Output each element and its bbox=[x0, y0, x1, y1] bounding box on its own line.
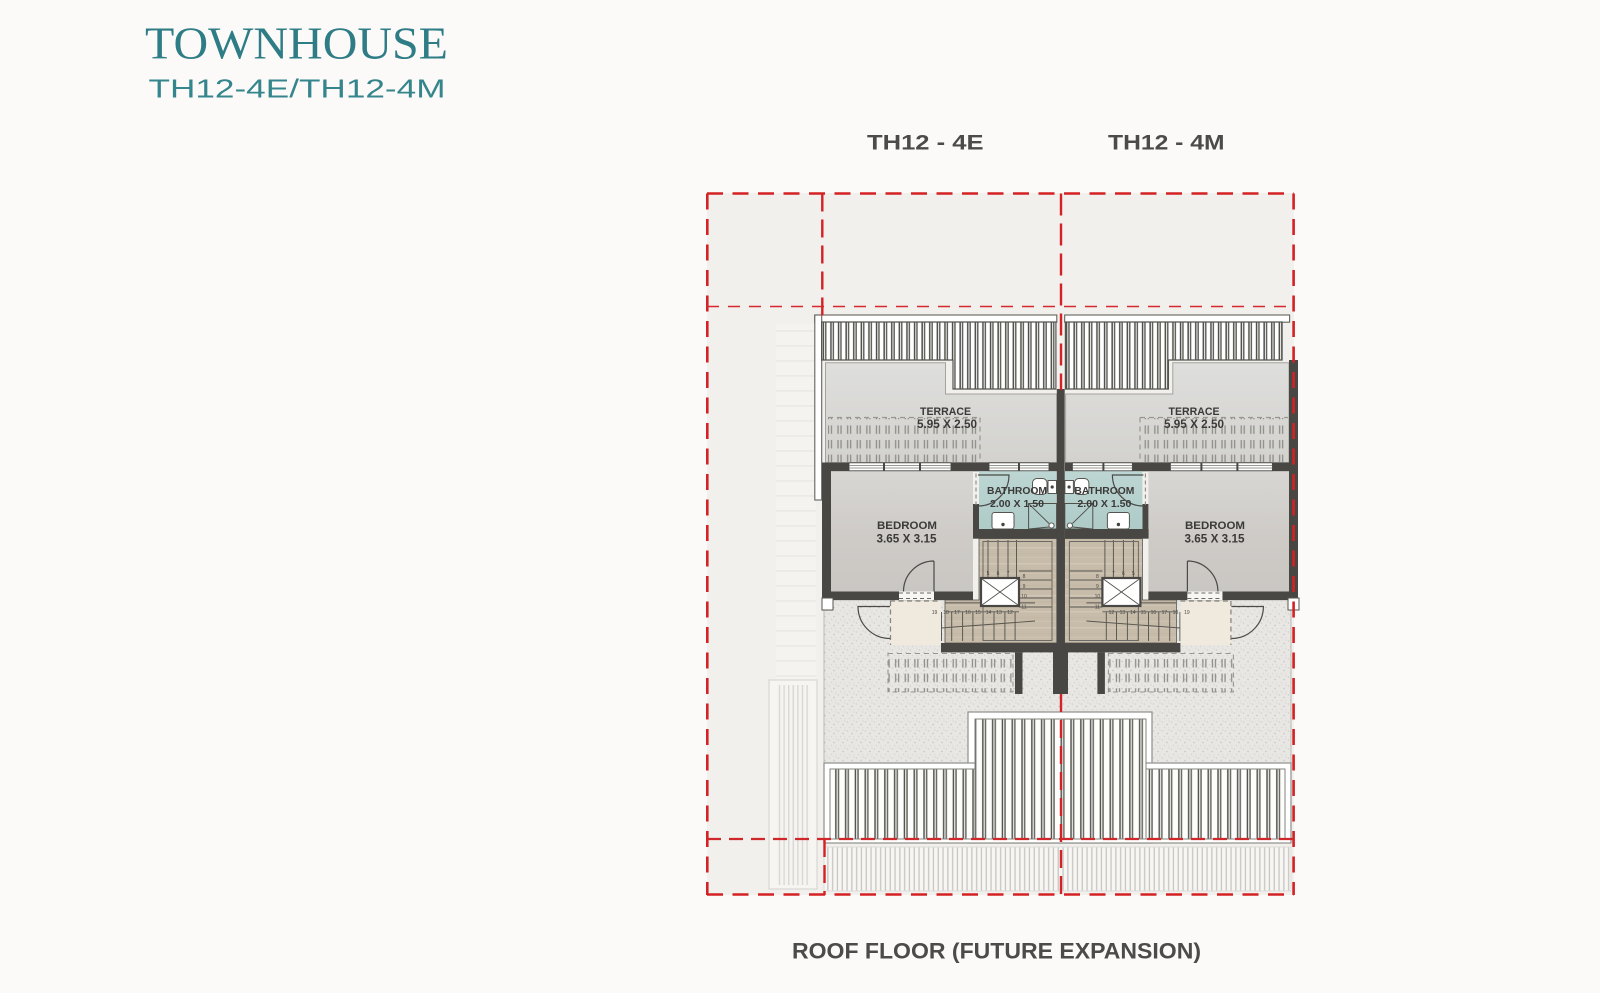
svg-text:5.95 X 2.50: 5.95 X 2.50 bbox=[1164, 419, 1224, 431]
svg-text:15: 15 bbox=[975, 610, 981, 616]
svg-text:17: 17 bbox=[954, 610, 960, 616]
svg-text:9: 9 bbox=[1096, 584, 1099, 590]
svg-text:6: 6 bbox=[1122, 571, 1125, 577]
svg-text:13: 13 bbox=[1120, 610, 1126, 616]
svg-text:5.95 X 2.50: 5.95 X 2.50 bbox=[917, 419, 977, 431]
svg-text:TERRACE: TERRACE bbox=[1169, 406, 1220, 418]
svg-text:TH12 - 4E: TH12 - 4E bbox=[867, 132, 984, 155]
svg-text:3.65 X 3.15: 3.65 X 3.15 bbox=[1185, 534, 1246, 546]
svg-text:6: 6 bbox=[997, 571, 1000, 577]
svg-text:19: 19 bbox=[1184, 610, 1190, 616]
svg-text:9: 9 bbox=[1023, 584, 1026, 590]
svg-text:BEDROOM: BEDROOM bbox=[1185, 520, 1245, 532]
svg-text:18: 18 bbox=[943, 610, 949, 616]
svg-text:11: 11 bbox=[1021, 605, 1026, 611]
svg-text:15: 15 bbox=[1141, 610, 1147, 616]
svg-text:BATHROOM: BATHROOM bbox=[987, 486, 1047, 497]
svg-text:5: 5 bbox=[987, 571, 990, 577]
svg-text:12: 12 bbox=[1007, 610, 1013, 616]
svg-text:16: 16 bbox=[1151, 610, 1157, 616]
svg-text:TERRACE: TERRACE bbox=[920, 406, 971, 418]
svg-text:13: 13 bbox=[996, 610, 1002, 616]
svg-text:TH12-4E/TH12-4M: TH12-4E/TH12-4M bbox=[149, 74, 446, 104]
svg-text:14: 14 bbox=[986, 610, 992, 616]
svg-text:16: 16 bbox=[965, 610, 971, 616]
svg-text:12: 12 bbox=[1109, 610, 1115, 616]
svg-text:BEDROOM: BEDROOM bbox=[877, 520, 937, 532]
svg-text:ROOF FLOOR (FUTURE EXPANSION): ROOF FLOOR (FUTURE EXPANSION) bbox=[792, 939, 1201, 964]
svg-text:2.00 X 1.50: 2.00 X 1.50 bbox=[990, 498, 1044, 510]
svg-text:14: 14 bbox=[1130, 610, 1136, 616]
svg-text:BATHROOM: BATHROOM bbox=[1074, 486, 1134, 497]
svg-text:7: 7 bbox=[1007, 571, 1010, 577]
svg-text:8: 8 bbox=[1096, 574, 1099, 580]
svg-text:7: 7 bbox=[1112, 571, 1115, 577]
svg-text:10: 10 bbox=[1095, 594, 1101, 600]
svg-text:18: 18 bbox=[1173, 610, 1179, 616]
svg-text:8: 8 bbox=[1023, 574, 1026, 580]
svg-text:19: 19 bbox=[932, 610, 938, 616]
svg-text:5: 5 bbox=[1132, 571, 1135, 577]
svg-text:TOWNHOUSE: TOWNHOUSE bbox=[145, 18, 448, 69]
svg-text:17: 17 bbox=[1162, 610, 1168, 616]
svg-text:11: 11 bbox=[1095, 605, 1100, 611]
svg-text:3.65 X 3.15: 3.65 X 3.15 bbox=[877, 534, 938, 546]
svg-text:2.00 X 1.50: 2.00 X 1.50 bbox=[1077, 498, 1131, 510]
svg-text:10: 10 bbox=[1021, 594, 1027, 600]
svg-text:TH12 - 4M: TH12 - 4M bbox=[1108, 132, 1225, 155]
